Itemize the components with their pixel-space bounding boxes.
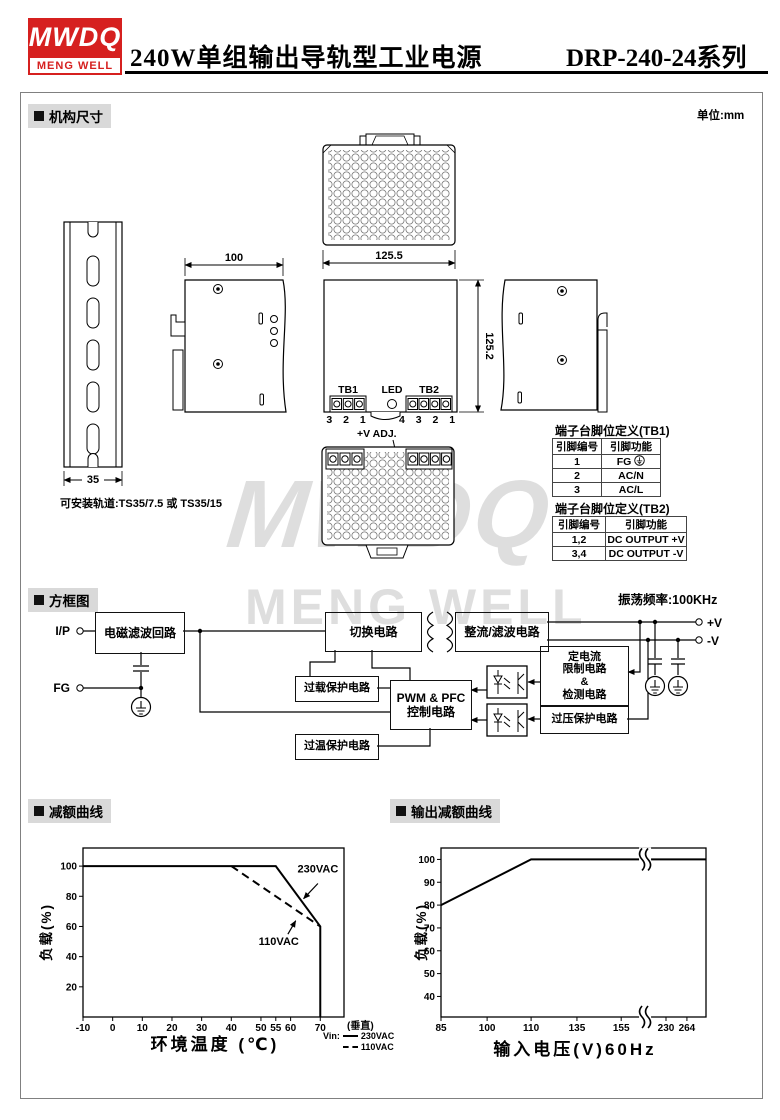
svg-text:100: 100 <box>60 862 77 873</box>
transformer-primary-coil-icon <box>428 612 434 652</box>
tb1-label: TB1 <box>338 384 358 396</box>
table-cell: DC OUTPUT -V <box>606 547 687 561</box>
bottom-view-drawing <box>322 447 454 558</box>
svg-text:110: 110 <box>523 1023 540 1034</box>
svg-text:80: 80 <box>66 892 78 903</box>
dim-height: 125.2 <box>483 332 495 360</box>
series-load <box>441 859 706 905</box>
table-header: 引脚编号 <box>553 517 606 533</box>
dashed-line-sample-icon <box>343 1046 358 1048</box>
block-overtemp-protection: 过温保护电路 <box>295 734 379 760</box>
dim-width: 100 <box>225 252 243 264</box>
tb2-pin-table: 引脚编号引脚功能1,2DC OUTPUT +V3,4DC OUTPUT -V <box>552 516 687 561</box>
ground-icon <box>669 677 688 696</box>
top-view-drawing: 125.5 <box>323 134 455 269</box>
table-header: 引脚编号 <box>553 439 602 455</box>
svg-text:264: 264 <box>679 1023 696 1034</box>
svg-text:135: 135 <box>569 1023 586 1034</box>
chart2-x-axis-label: 输入电压(V)60Hz <box>475 1035 675 1060</box>
led-label: LED <box>382 384 403 396</box>
block-overvoltage-protection: 过压保护电路 <box>540 706 629 734</box>
din-rail-drawing: 35 <box>64 222 122 486</box>
svg-text:-10: -10 <box>76 1023 91 1034</box>
table-row: 1,2DC OUTPUT +V <box>553 533 687 547</box>
block-switching: 切换电路 <box>325 612 422 652</box>
chart1-x-axis-label: 环境温度 (℃) <box>115 1030 315 1055</box>
tb1-table-caption: 端子台脚位定义(TB1) <box>555 422 670 439</box>
table-cell: 3 <box>553 483 602 497</box>
tb1-pin-table: 引脚编号引脚功能1FG 2AC/N3AC/L <box>552 438 661 497</box>
table-cell: 1,2 <box>553 533 606 547</box>
table-row: 2AC/N <box>553 469 661 483</box>
svg-text:40: 40 <box>424 992 436 1003</box>
svg-text:100: 100 <box>418 855 435 866</box>
earth-ground-icon <box>634 455 645 466</box>
table-header: 引脚功能 <box>606 517 687 533</box>
chart2-y-axis-label: 负载(%) <box>410 885 430 979</box>
svg-text:85: 85 <box>435 1023 447 1034</box>
legend-entry: 230VAC <box>361 1031 394 1041</box>
axis-ticks: 85100110135155230264405060708090100 <box>418 855 695 1034</box>
chart1-y-axis-label: 负载(%) <box>35 885 55 979</box>
table-cell: FG <box>602 455 661 469</box>
block-rectifier-filter: 整流/滤波电路 <box>455 612 549 652</box>
table-cell: AC/N <box>602 469 661 483</box>
table-cell: 1 <box>553 455 602 469</box>
vplus-label: +V <box>707 616 722 630</box>
legend-entry: 110VAC <box>361 1042 394 1052</box>
table-header: 引脚功能 <box>602 439 661 455</box>
table-row: 3AC/L <box>553 483 661 497</box>
block-emi-filter: 电磁滤波回路 <box>95 612 185 654</box>
block-constant-current-detect: 定电流 限制电路 & 检测电路 <box>540 646 629 706</box>
svg-text:155: 155 <box>613 1023 630 1034</box>
table-row: 3,4DC OUTPUT -V <box>553 547 687 561</box>
svg-text:100: 100 <box>479 1023 496 1034</box>
dim-rail-width: 35 <box>87 474 99 486</box>
block-overload-protection: 过载保护电路 <box>295 676 379 702</box>
tb2-label: TB2 <box>419 384 439 396</box>
chart1-legend: Vin: 230VAC 110VAC <box>323 1031 394 1052</box>
ground-icon <box>646 677 665 696</box>
table-cell: 2 <box>553 469 602 483</box>
table-cell: 3,4 <box>553 547 606 561</box>
table-cell: DC OUTPUT +V <box>606 533 687 547</box>
input-label: I/P <box>55 624 70 638</box>
solid-line-sample-icon <box>343 1035 358 1037</box>
svg-text:230: 230 <box>658 1023 675 1034</box>
datasheet-page: MWDQ MENG WELL 240W单组输出导轨型工业电源 DRP-240-2… <box>0 0 780 1120</box>
svg-text:20: 20 <box>66 982 78 993</box>
plot-frame <box>441 848 706 1017</box>
block-pwm-pfc-control: PWM & PFC 控制电路 <box>390 680 472 730</box>
legend-title: Vin: <box>323 1031 340 1052</box>
transformer-secondary-coil-icon <box>447 612 453 652</box>
svg-text:60: 60 <box>66 922 78 933</box>
side-view-left-drawing: 100 <box>171 252 286 412</box>
annotation: 230VAC <box>298 864 339 876</box>
ground-icon <box>132 698 151 717</box>
table-row: 1FG <box>553 455 661 469</box>
tb2-table-caption: 端子台脚位定义(TB2) <box>555 500 670 517</box>
dim-depth: 125.5 <box>375 250 403 262</box>
vminus-label: -V <box>707 634 719 648</box>
rail-compatibility-note: 可安装轨道:TS35/7.5 或 TS35/15 <box>60 495 260 511</box>
side-view-right-drawing <box>501 280 607 412</box>
annotation: 110VAC <box>259 936 299 948</box>
fg-label: FG <box>53 681 70 695</box>
tb1-pin-numbers: 3 2 1 <box>326 414 369 426</box>
table-cell: AC/L <box>602 483 661 497</box>
svg-text:40: 40 <box>66 952 78 963</box>
vadj-label: +V ADJ. <box>357 428 397 440</box>
mounting-orientation-note: (垂直) <box>347 1017 374 1032</box>
tb2-pin-numbers: 4 3 2 1 <box>399 414 459 426</box>
optocoupler-icon <box>487 666 527 736</box>
